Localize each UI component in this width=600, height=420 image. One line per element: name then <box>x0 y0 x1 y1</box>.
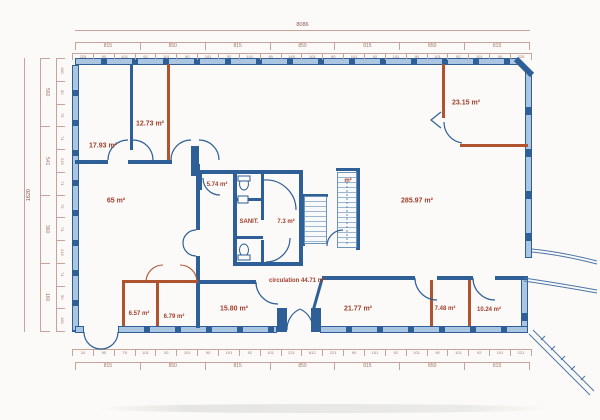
dim-total-top-value: 8086 <box>296 22 308 28</box>
dim-value: 815 <box>75 362 140 370</box>
room-label-10-24: 10.24 m² <box>477 307 501 313</box>
dim-value: 812 <box>301 349 322 356</box>
awning-curve-1b <box>532 252 597 264</box>
dim-value: 815 <box>205 42 270 50</box>
door-arc-2177 <box>415 278 437 300</box>
dim-value: 24 <box>72 349 93 356</box>
awning-curve-2a <box>524 278 597 290</box>
dim-chain-bottom-segments: 815850815850815850815 <box>75 362 530 370</box>
dim-total-left: 1620 <box>24 58 32 332</box>
dim-value: 74 <box>56 263 65 286</box>
dim-value: 101 <box>176 349 197 356</box>
dim-value: 221 <box>510 349 532 356</box>
wall-office-bottom-b <box>128 160 172 164</box>
ramp-hatch-ticks <box>541 336 585 380</box>
dim-value: 101 <box>343 53 364 60</box>
wall-sanitary-inner-h2 <box>237 236 263 239</box>
dim-value: 225 <box>72 53 93 60</box>
dim-value: 92 <box>468 349 489 356</box>
dim-value: 101 <box>239 53 260 60</box>
room-label-12-73: 12.73 m² <box>136 121 164 128</box>
partition-657-left <box>122 283 125 326</box>
exterior-wall-right-upper <box>525 72 532 258</box>
entrance-pier-left <box>277 308 287 332</box>
dim-value: 815 <box>464 42 530 50</box>
partition-748-left <box>430 280 433 326</box>
dim-chain-left-segments: 560541360160 <box>40 58 50 332</box>
dim-value: 215 <box>56 149 65 172</box>
dim-value: 90 <box>260 53 281 60</box>
dim-chain-top-ticks: 2259010192101901019210190145101901019210… <box>72 53 532 60</box>
dim-value: 92 <box>218 53 239 60</box>
dim-value: 90 <box>322 53 343 60</box>
dim-value: 815 <box>75 42 140 50</box>
room-label-23-15: 23.15 m² <box>452 100 480 107</box>
exterior-wall-right-lower <box>521 278 528 332</box>
room-label-65: 65 m² <box>107 198 125 205</box>
dim-value: 74 <box>56 172 65 195</box>
room-label-7-3: 7.3 m² <box>277 219 294 225</box>
dim-value: 101 <box>427 53 448 60</box>
floor-plan-page: 17.93 m² 12.73 m² 23.15 m² 65 m² 5.74 m²… <box>0 0 600 420</box>
dim-value: 101 <box>260 349 281 356</box>
door-arc-2315 <box>444 122 462 143</box>
entrance-pier-right <box>311 308 321 332</box>
exterior-wall-bottom-a <box>75 326 84 333</box>
wall-sanitary-top <box>199 170 303 174</box>
dim-value: 75 <box>114 349 135 356</box>
exterior-wall-left <box>72 65 79 332</box>
wall-office-bottom-a <box>75 160 108 164</box>
dim-value: 160 <box>56 308 65 332</box>
dim-value: 90 <box>197 349 218 356</box>
dim-value: 101 <box>114 53 135 60</box>
dim-value: 92 <box>385 349 406 356</box>
wall-rightband-top-c <box>495 276 528 280</box>
dim-value: 541 <box>40 126 50 194</box>
dim-value: 225 <box>510 53 532 60</box>
dim-value: 90 <box>56 81 65 104</box>
partition-2315-left <box>442 64 445 118</box>
door-arc-corridor-right <box>199 140 219 160</box>
door-arc-corridor-left <box>171 140 191 160</box>
dim-value: 101 <box>135 349 156 356</box>
stairs-flight-left <box>304 196 327 244</box>
toilet-icon-upper <box>240 178 249 190</box>
dim-value: 74 <box>56 126 65 149</box>
dim-value: 360 <box>40 195 50 263</box>
wall-stairs-cap-right <box>336 168 358 171</box>
room-label-7-48: 7.48 m² <box>435 306 456 312</box>
dim-value: 90 <box>406 53 427 60</box>
exterior-door-left-leaf <box>84 332 101 349</box>
door-arc-65-lower <box>183 243 196 256</box>
door-arc-sanitary-lower <box>266 238 290 262</box>
dim-value: 90 <box>427 349 448 356</box>
dim-value: 90 <box>176 53 197 60</box>
room-label-285-97: 285.97 m² <box>401 198 433 205</box>
wall-divider-offices <box>130 64 133 150</box>
dim-value: 850 <box>399 362 464 370</box>
dim-value: 90 <box>489 53 510 60</box>
dim-total-left-value: 1620 <box>26 189 32 201</box>
room-label-stairs: m² <box>344 178 351 184</box>
room-label-15-80: 15.80 m² <box>220 306 248 313</box>
toilet-tank-upper <box>238 176 250 181</box>
entrance-door-left-leaf <box>287 309 300 330</box>
door-jog-2315 <box>431 112 441 128</box>
dim-value: 815 <box>334 362 399 370</box>
ramp-edge-a <box>529 334 590 395</box>
dim-value: 221 <box>281 349 302 356</box>
dim-value: 75 <box>56 195 65 218</box>
dim-value: 101 <box>197 53 218 60</box>
wall-sanitary-left <box>233 170 237 266</box>
wall-rightband-top-a <box>322 276 415 280</box>
room-label-sanit: SANIT. <box>239 219 258 225</box>
room-label-17-93: 17.93 m² <box>89 143 117 150</box>
partition-1273-right <box>167 64 170 160</box>
dim-value: 92 <box>239 349 260 356</box>
dim-chain-bottom-ticks: 2490751019210190101921012218122219010192… <box>72 349 532 356</box>
dim-value: 560 <box>40 58 50 126</box>
room-label-6-57: 6.57 m² <box>129 311 150 317</box>
dim-value: 101 <box>155 53 176 60</box>
dim-value: 850 <box>140 362 205 370</box>
dim-chain-top-segments: 815850815850815850815 <box>75 42 530 50</box>
room-label-6-79: 6.79 m² <box>164 314 185 320</box>
dim-value: 101 <box>489 349 510 356</box>
dim-value: 815 <box>205 362 270 370</box>
partition-2315-bottom <box>460 144 528 147</box>
dim-value: 101 <box>301 53 322 60</box>
dim-value: 101 <box>364 349 385 356</box>
dim-value: 815 <box>464 362 530 370</box>
wall-sanitary-inner-v1 <box>261 170 264 220</box>
door-arc-65-upper <box>183 230 196 243</box>
dim-value: 90 <box>93 349 114 356</box>
dim-value: 215 <box>56 240 65 263</box>
dim-value: 101 <box>218 349 239 356</box>
dim-total-top: 8086 <box>75 22 530 31</box>
dim-value: 101 <box>447 349 468 356</box>
dim-value: 145 <box>281 53 302 60</box>
partition-657-top <box>122 280 198 283</box>
dim-value: 850 <box>270 42 335 50</box>
dim-value: 90 <box>343 349 364 356</box>
dim-value: 850 <box>399 42 464 50</box>
wall-sanitary-inner-v2 <box>261 240 264 266</box>
dim-value: 850 <box>140 42 205 50</box>
wall-65-right-lower <box>196 256 200 328</box>
room-label-circulation: circulation 44.71 m² <box>269 278 325 284</box>
dim-value: 75 <box>56 104 65 127</box>
dim-value: 92 <box>364 53 385 60</box>
dim-chain-left-ticks: 1609075742157475742157490160 <box>56 58 65 332</box>
partition-748-right <box>468 280 471 326</box>
dim-value: 160 <box>40 263 50 332</box>
dim-value: 850 <box>270 362 335 370</box>
dim-value: 160 <box>56 58 65 81</box>
awning-curve-2b <box>524 281 597 293</box>
exterior-wall-bottom-c <box>320 326 528 333</box>
awning-curve-1a <box>532 249 597 261</box>
dim-value: 101 <box>406 349 427 356</box>
dim-value: 90 <box>93 53 114 60</box>
scan-smudge <box>95 404 555 413</box>
door-arc-1024 <box>473 278 495 300</box>
ramp-edge-b <box>533 330 594 391</box>
dim-value: 92 <box>447 53 468 60</box>
dim-value: 74 <box>56 217 65 240</box>
toilet-icon-lower <box>240 244 249 256</box>
door-arc-sanitary-main <box>264 180 296 210</box>
wall-65-right-upper <box>196 164 200 230</box>
wall-1580-top <box>198 280 256 284</box>
dim-value: 101 <box>385 53 406 60</box>
dim-value: 221 <box>322 349 343 356</box>
dim-value: 92 <box>155 349 176 356</box>
dim-value: 101 <box>468 53 489 60</box>
toilet-tank-lower <box>238 255 250 260</box>
room-label-5-74: 5.74 m² <box>207 182 228 188</box>
exterior-door-right-leaf <box>101 332 118 349</box>
wall-sanitary-inner-h1 <box>237 198 263 201</box>
dim-value: 92 <box>135 53 156 60</box>
wall-sanitary-bottom <box>233 262 303 266</box>
door-arc-1273 <box>133 140 153 160</box>
dim-value: 815 <box>334 42 399 50</box>
door-arc-1580 <box>256 282 278 304</box>
room-label-21-77: 21.77 m² <box>344 306 372 313</box>
dim-value: 90 <box>56 286 65 309</box>
partition-657-right <box>156 283 159 326</box>
